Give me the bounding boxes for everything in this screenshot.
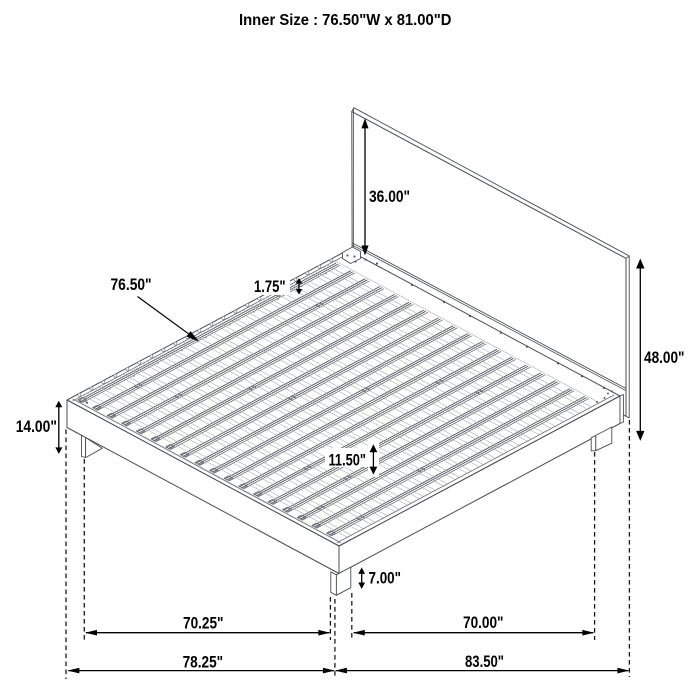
svg-text:70.25": 70.25" xyxy=(183,615,224,633)
svg-text:Inner Size : 76.50"W x 81.00"D: Inner Size : 76.50"W x 81.00"D xyxy=(239,12,452,29)
svg-text:14.00": 14.00" xyxy=(16,418,57,436)
svg-text:83.50": 83.50" xyxy=(465,653,504,671)
svg-text:48.00": 48.00" xyxy=(644,349,685,367)
svg-text:70.00": 70.00" xyxy=(463,614,504,632)
svg-text:76.50": 76.50" xyxy=(111,276,152,294)
svg-text:78.25": 78.25" xyxy=(183,654,224,672)
svg-text:7.00": 7.00" xyxy=(369,570,402,588)
svg-text:1.75": 1.75" xyxy=(254,278,286,296)
svg-text:36.00": 36.00" xyxy=(369,188,410,206)
svg-text:11.50": 11.50" xyxy=(329,452,367,470)
